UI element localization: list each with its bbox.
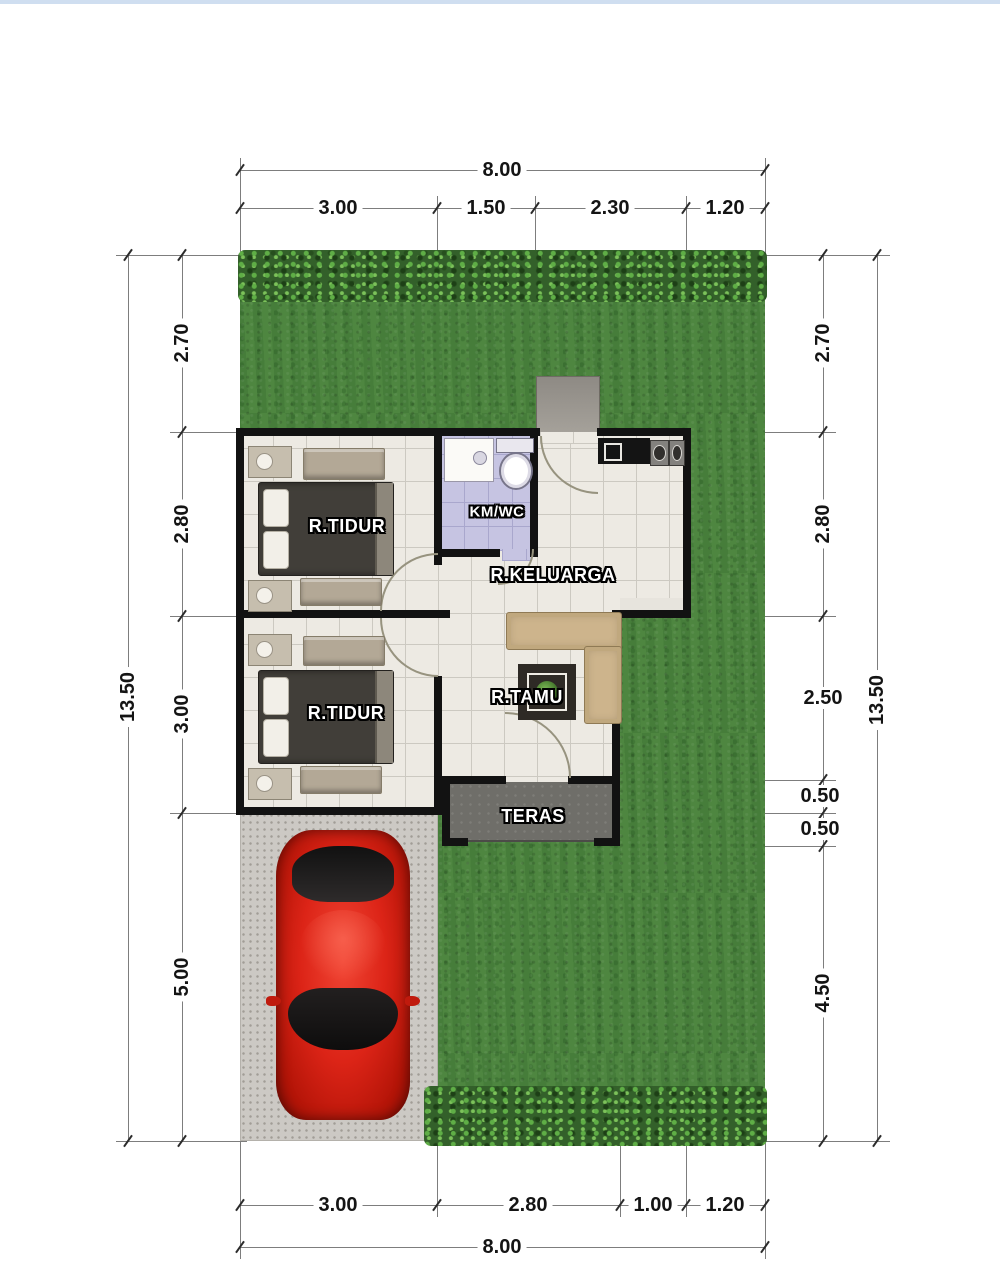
dim-label: 4.50 <box>812 969 834 1018</box>
room-label-terrace: TERAS <box>501 807 565 825</box>
dim-label: 1.50 <box>462 197 511 219</box>
dim-label: 1.20 <box>701 197 750 219</box>
nightstand-icon <box>248 580 292 612</box>
floor-plan: 8.00 3.00 1.50 2.30 1.20 3.00 2.80 1.00 … <box>0 0 1000 1288</box>
nightstand-icon <box>248 768 292 800</box>
extension-line <box>759 255 890 256</box>
wall-left <box>236 428 244 815</box>
kitchen-counter-icon <box>598 438 650 464</box>
sink-icon <box>444 438 494 482</box>
wall-jog-family <box>618 610 691 618</box>
side-step-ledge <box>620 598 684 610</box>
pillow-icon <box>263 531 289 569</box>
hedge-bottom <box>424 1086 767 1146</box>
lot-grass: R.TIDUR R.TIDUR KM/WC R.KELUARGA R.TAMU … <box>240 253 765 1141</box>
wall-terrace-stub-left <box>442 838 468 846</box>
bench-icon <box>303 448 385 480</box>
dim-label-left-total: 13.50 <box>117 667 139 727</box>
wall-bedroom1-right <box>434 428 442 565</box>
nightstand-icon <box>248 634 292 666</box>
dim-label: 2.70 <box>812 319 834 368</box>
extension-line <box>759 813 836 814</box>
wall-top-left <box>236 428 540 436</box>
wall-top-right <box>597 428 691 436</box>
bench-icon <box>300 578 382 606</box>
dim-label: 1.00 <box>629 1194 678 1216</box>
wall-bottom-bedroom <box>236 807 450 815</box>
pillow-icon <box>263 719 289 757</box>
car-rear-window <box>292 846 394 902</box>
extension-line <box>759 780 836 781</box>
extension-line <box>759 1141 890 1142</box>
dim-label: 3.00 <box>314 197 363 219</box>
dim-label: 2.50 <box>799 687 848 709</box>
hedge-top <box>238 250 767 302</box>
stove-burner-icon <box>650 440 669 466</box>
dim-label: 2.80 <box>171 500 193 549</box>
extension-line <box>759 846 836 847</box>
car-icon <box>276 830 410 1120</box>
dim-label-top-total: 8.00 <box>478 159 527 181</box>
room-label-bedroom-bottom: R.TIDUR <box>308 704 385 722</box>
extension-line <box>759 616 836 617</box>
dim-label: 2.80 <box>504 1194 553 1216</box>
dim-label: 5.00 <box>171 953 193 1002</box>
room-label-bathroom: KM/WC <box>470 505 525 520</box>
extension-line <box>759 432 836 433</box>
bench-icon <box>300 766 382 794</box>
car-mirror-right <box>405 996 420 1006</box>
dim-label-right-total: 13.50 <box>866 670 888 730</box>
wall-terrace-left <box>442 776 450 844</box>
pillow-icon <box>263 489 289 527</box>
dim-label: 0.50 <box>796 785 845 807</box>
nightstand-icon <box>248 446 292 478</box>
toilet-icon <box>499 452 533 490</box>
dim-label: 0.50 <box>796 818 845 840</box>
stove-burner-icon <box>669 440 685 466</box>
dim-label-bottom-total: 8.00 <box>478 1236 527 1258</box>
sofa-back-icon <box>506 612 622 650</box>
top-border <box>0 0 1000 4</box>
dim-label: 2.30 <box>586 197 635 219</box>
bench-icon <box>303 636 385 666</box>
wall-living-front-left <box>442 776 506 784</box>
wall-terrace-stub-right <box>594 838 620 846</box>
wall-living-front-right <box>568 776 618 784</box>
room-label-family-room: R.KELUARGA <box>491 566 616 584</box>
toilet-tank-icon <box>496 438 534 453</box>
back-step-pad <box>536 376 600 436</box>
dim-label: 2.70 <box>171 319 193 368</box>
dim-label: 3.00 <box>171 690 193 739</box>
wall-bathroom-bottom <box>434 549 500 557</box>
wall-terrace-right <box>612 776 620 844</box>
wall-bedroom2-right <box>434 676 442 815</box>
pillow-icon <box>263 677 289 715</box>
dim-label: 2.80 <box>812 500 834 549</box>
dim-label: 3.00 <box>314 1194 363 1216</box>
room-label-bedroom-top: R.TIDUR <box>309 517 386 535</box>
sofa-arm-icon <box>584 646 622 724</box>
dim-label: 1.20 <box>701 1194 750 1216</box>
car-mirror-left <box>266 996 281 1006</box>
car-roof-gloss <box>300 910 386 982</box>
room-label-living-room: R.TAMU <box>491 688 563 706</box>
